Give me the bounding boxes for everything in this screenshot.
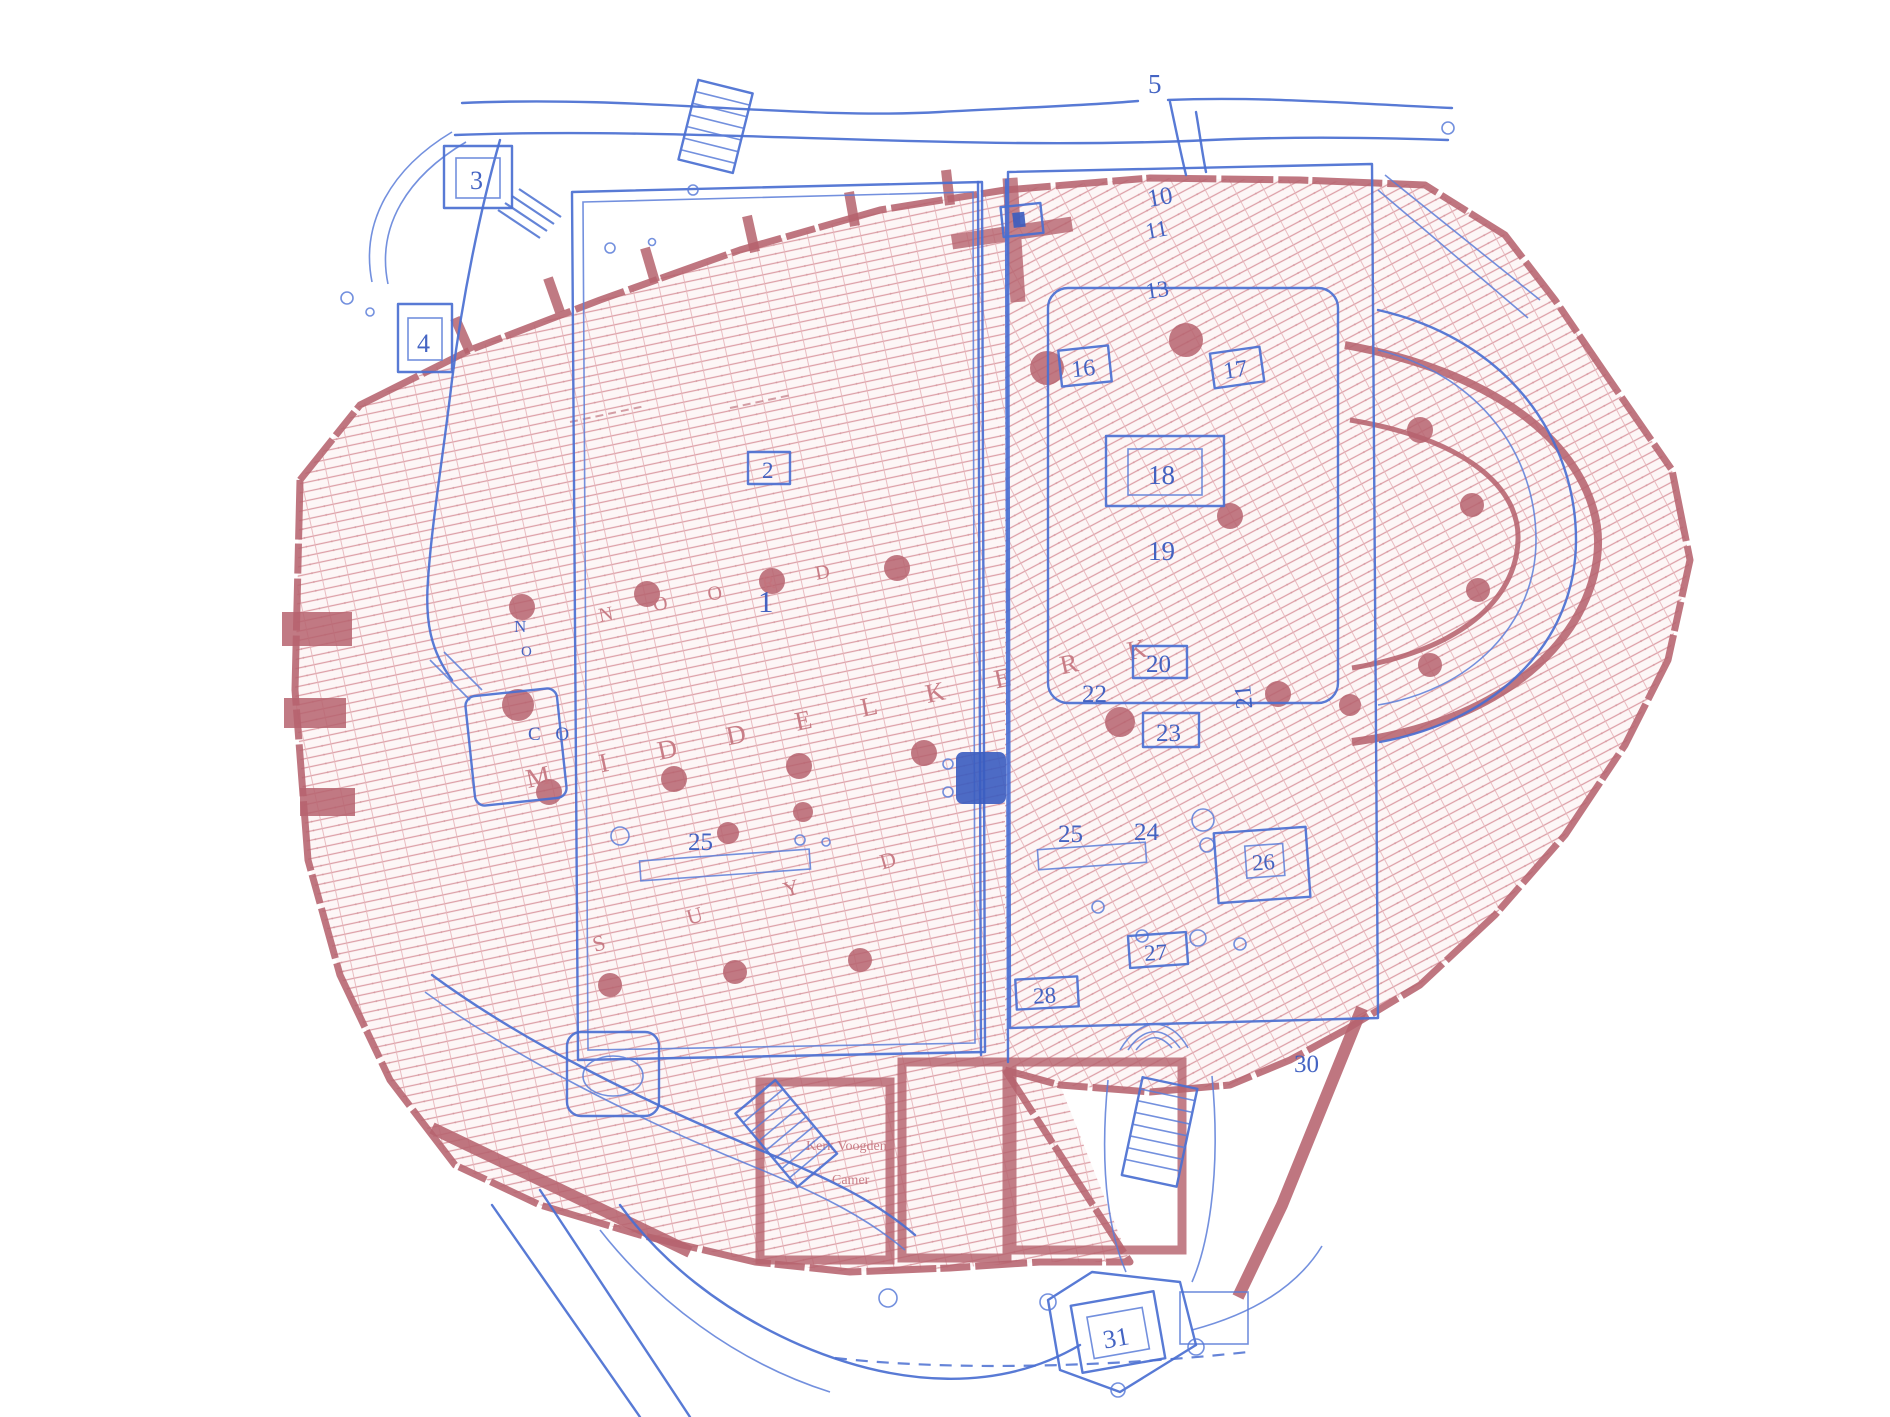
svg-text:28: 28 (1032, 983, 1056, 1009)
svg-text:18: 18 (1148, 460, 1175, 490)
label-19: 19 (1148, 536, 1175, 566)
label-22: 22 (1082, 681, 1107, 708)
svg-text:3: 3 (470, 166, 483, 195)
blue-dot (649, 239, 656, 246)
label-13: 13 (1144, 276, 1170, 304)
label-5: 5 (1148, 69, 1162, 99)
label-box-3: 3 (444, 146, 512, 208)
red-plan-layer: M I D D E L K E R K N O O R D S U Y D Ke… (282, 170, 1690, 1297)
plan-overlay-page: M I D D E L K E R K N O O R D S U Y D Ke… (0, 0, 1890, 1417)
svg-text:17: 17 (1222, 356, 1249, 385)
blue-top-boundary-2 (1168, 99, 1452, 108)
letter-o: O (521, 644, 532, 660)
blue-dot (366, 308, 374, 316)
red-room-caption-1: Kerk Voogden (806, 1139, 887, 1154)
red-wall-block (282, 612, 352, 646)
label-10: 10 (1145, 182, 1174, 213)
label-24: 24 (1134, 819, 1160, 846)
blue-stair-north (678, 80, 752, 173)
label-25-right: 25 (1058, 821, 1083, 848)
letter-n: N (514, 617, 526, 636)
svg-text:4: 4 (417, 329, 430, 358)
church-plan-overlay-drawing: M I D D E L K E R K N O O R D S U Y D Ke… (0, 0, 1890, 1417)
blue-gate-path (1170, 102, 1206, 175)
label-30: 30 (1294, 1051, 1319, 1078)
svg-text:2: 2 (762, 458, 774, 483)
svg-text:27: 27 (1143, 939, 1168, 966)
red-wall-block (300, 788, 355, 816)
blue-top-boundary-inner (455, 133, 1448, 143)
label-11: 11 (1144, 215, 1170, 243)
blue-dot (341, 292, 353, 304)
label-25-left: 25 (688, 829, 713, 856)
label-1: 1 (758, 584, 774, 619)
blue-stair-by-box3 (498, 189, 561, 238)
svg-text:20: 20 (1146, 651, 1171, 678)
label-31: 31 (1101, 1321, 1132, 1354)
blue-top-boundary (462, 101, 1138, 114)
svg-text:16: 16 (1070, 355, 1097, 383)
svg-text:26: 26 (1251, 849, 1276, 876)
red-choir-hatch (1005, 178, 1690, 1092)
blue-dot (605, 243, 615, 253)
svg-text:23: 23 (1156, 720, 1181, 747)
red-wall-block (284, 698, 346, 728)
label-21: 21 (1230, 684, 1258, 710)
blue-dot (1442, 122, 1454, 134)
porch-letters-co: C O (528, 724, 574, 745)
